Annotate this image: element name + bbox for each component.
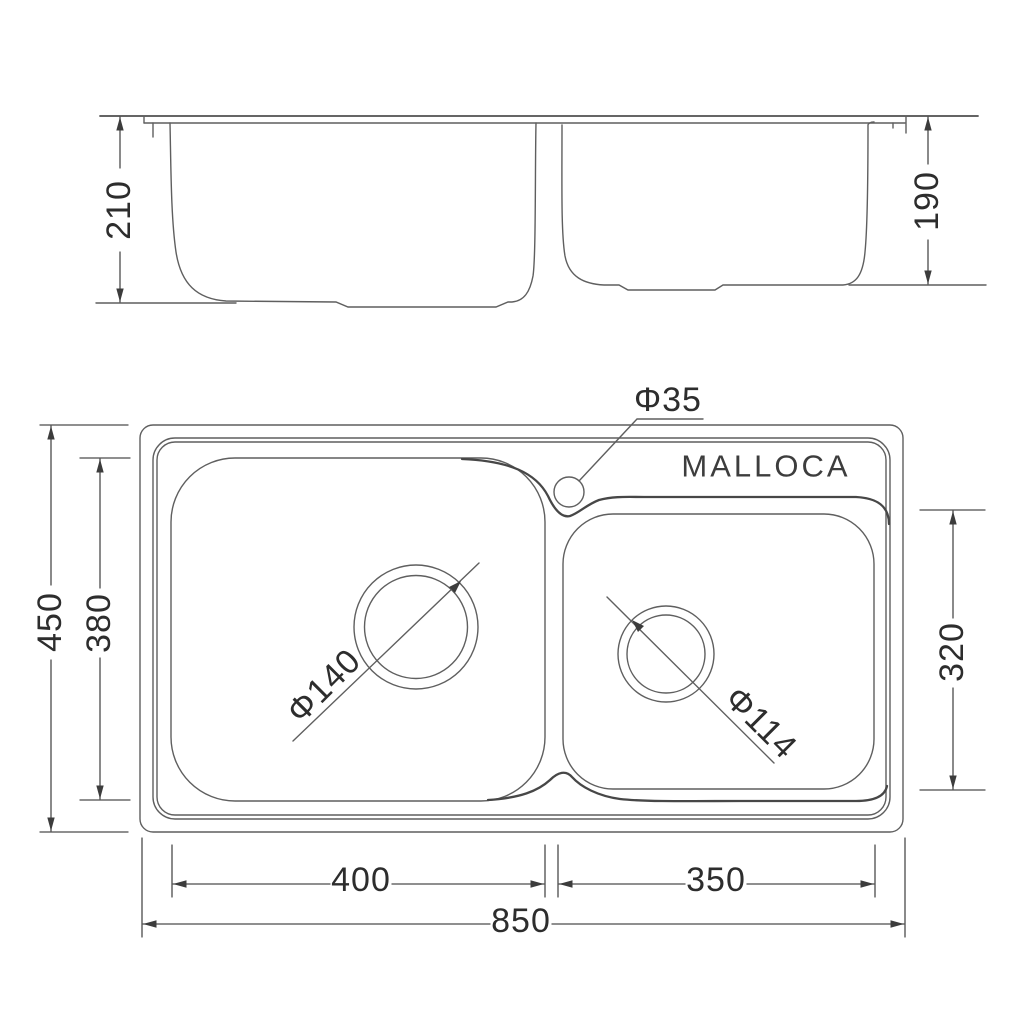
- plan-outer-flange: [140, 425, 903, 832]
- elevation-view: [96, 116, 986, 307]
- drawing-canvas: 210 190: [0, 0, 1024, 1024]
- elevation-right-lip: [893, 116, 906, 133]
- dim-190-label: 190: [908, 171, 946, 231]
- plan-left-bowl: [171, 458, 545, 801]
- faucet-hole: [554, 477, 584, 507]
- elevation-left-lip: [144, 116, 153, 137]
- dim-400-label: 400: [331, 861, 391, 899]
- elevation-left-bowl-profile: [170, 123, 536, 307]
- elevation-right-bowl-profile: [562, 122, 874, 290]
- dim-210-label: 210: [100, 180, 138, 240]
- right-drain-arrowhead: [632, 620, 644, 632]
- dim-320-label: 320: [933, 622, 971, 682]
- right-drain-diameter-label: Φ114: [717, 679, 804, 766]
- plan-view: [40, 419, 985, 937]
- dim-350-label: 350: [686, 861, 746, 899]
- plan-dimension-lines: [40, 425, 985, 937]
- plan-bottom-bump-line: [488, 773, 887, 801]
- brand-logo-text: MALLOCA: [681, 449, 850, 484]
- dim-850-label: 850: [491, 902, 551, 940]
- dim-380-label: 380: [80, 593, 118, 653]
- faucet-hole-diameter-label: Φ35: [634, 381, 702, 419]
- right-drain-diameter-line: [607, 597, 774, 763]
- left-drain-arrowhead: [449, 581, 461, 593]
- plan-right-bowl: [563, 514, 874, 789]
- sink-technical-drawing: 210 190: [0, 0, 1024, 1024]
- left-drain-diameter-label: Φ140: [280, 642, 369, 731]
- dim-450-label: 450: [31, 592, 69, 652]
- left-drain-inner-circle: [365, 576, 468, 679]
